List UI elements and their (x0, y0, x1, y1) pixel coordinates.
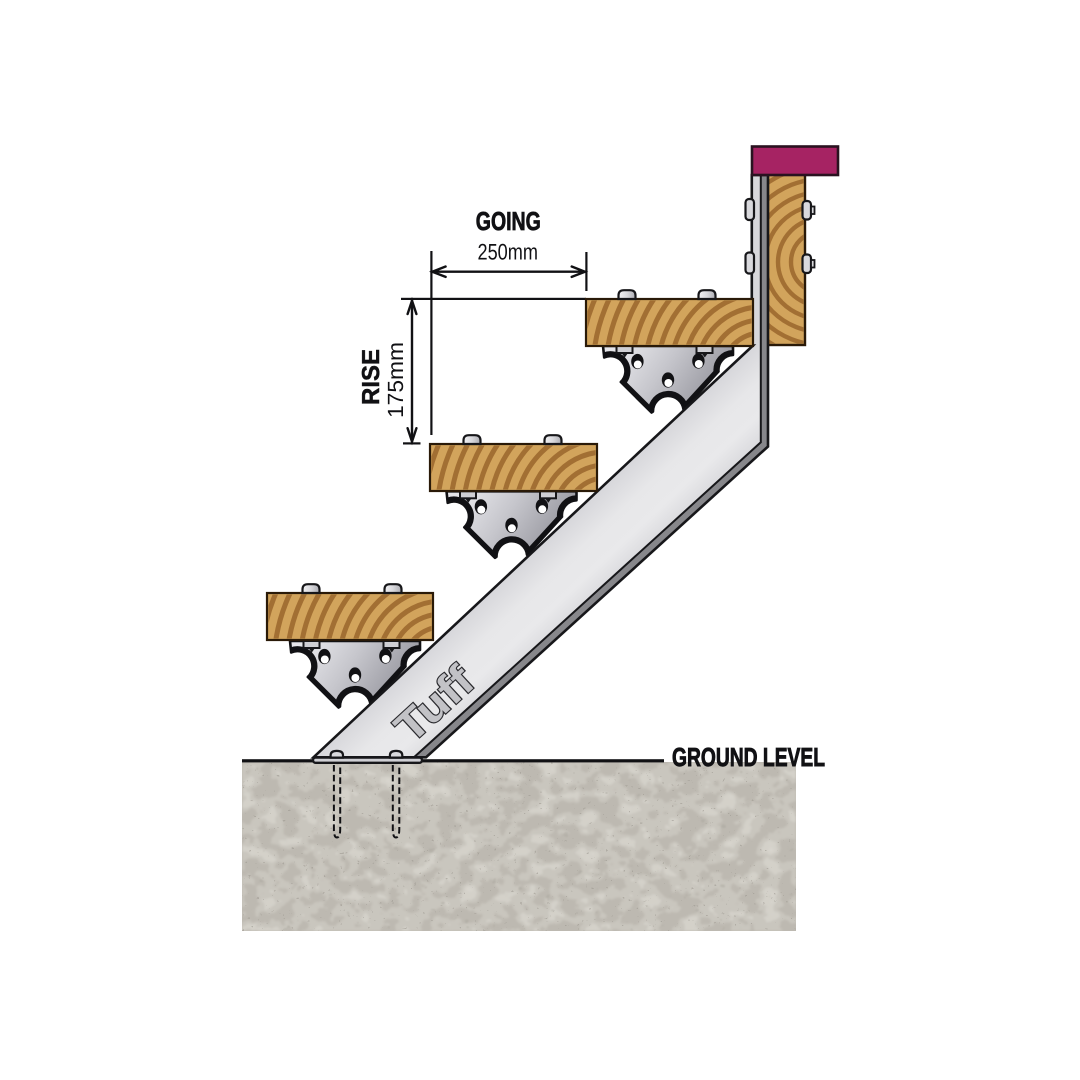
svg-text:RISE: RISE (358, 349, 385, 405)
svg-text:250mm: 250mm (478, 240, 539, 265)
svg-text:GROUND LEVEL: GROUND LEVEL (672, 742, 825, 772)
svg-text:175mm: 175mm (383, 342, 408, 418)
svg-text:GOING: GOING (476, 206, 541, 236)
